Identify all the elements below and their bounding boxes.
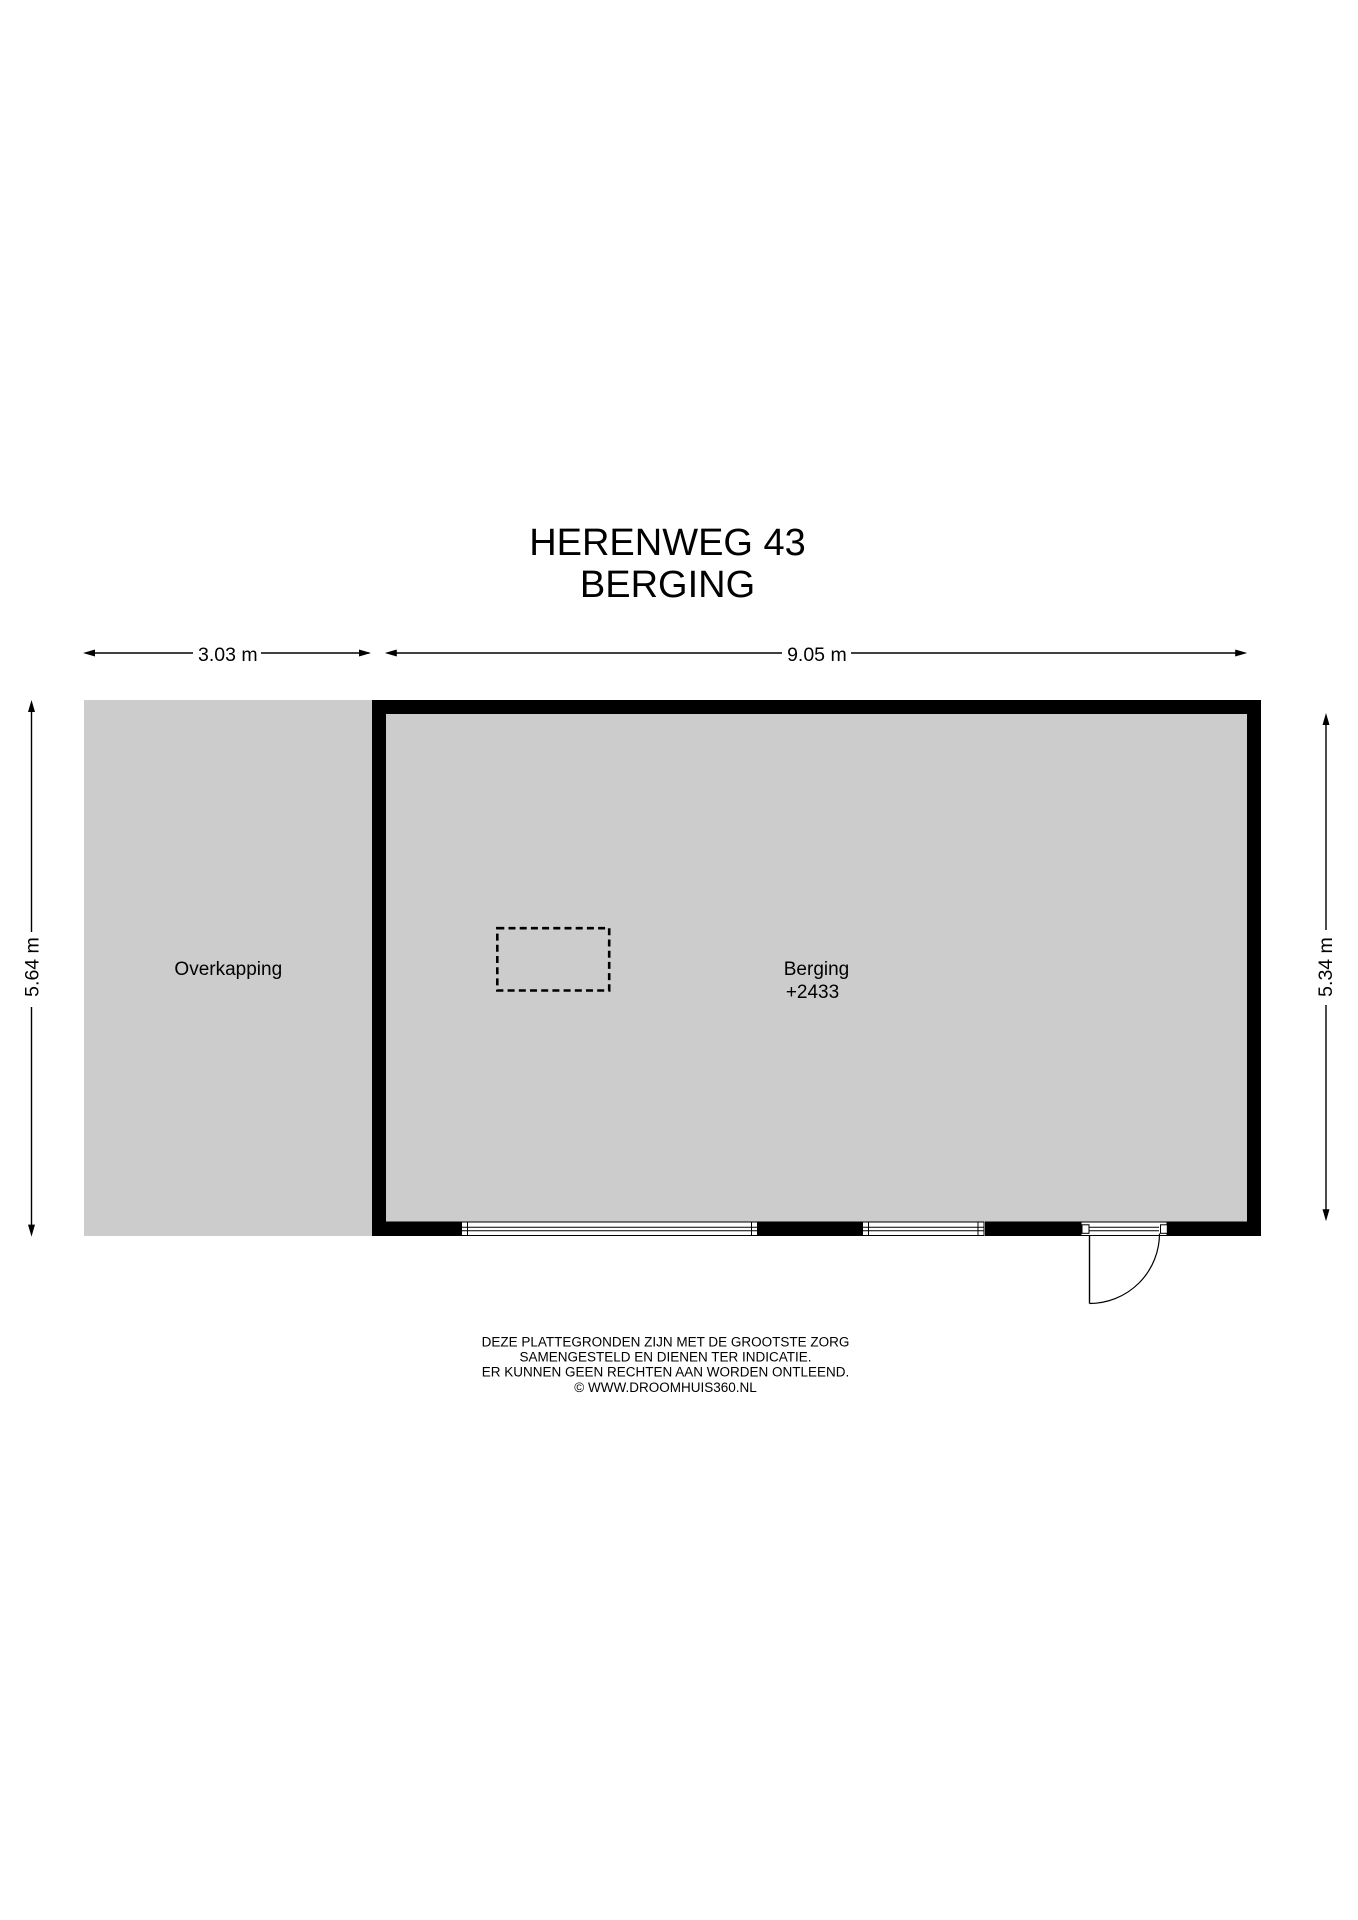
svg-text:ER KUNNEN GEEN RECHTEN AAN WOR: ER KUNNEN GEEN RECHTEN AAN WORDEN ONTLEE… bbox=[482, 1365, 850, 1380]
svg-text:BERGING: BERGING bbox=[580, 564, 755, 606]
svg-text:5.64 m: 5.64 m bbox=[22, 937, 44, 997]
svg-text:Overkapping: Overkapping bbox=[174, 959, 282, 980]
svg-text:© WWW.DROOMHUIS360.NL: © WWW.DROOMHUIS360.NL bbox=[574, 1380, 757, 1395]
svg-text:9.05 m: 9.05 m bbox=[787, 644, 847, 666]
svg-text:5.34 m: 5.34 m bbox=[1315, 937, 1337, 997]
svg-text:HERENWEG 43: HERENWEG 43 bbox=[529, 522, 806, 564]
svg-text:Berging: Berging bbox=[784, 959, 850, 980]
svg-text:DEZE PLATTEGRONDEN ZIJN MET DE: DEZE PLATTEGRONDEN ZIJN MET DE GROOTSTE … bbox=[482, 1334, 850, 1349]
svg-text:SAMENGESTELD EN DIENEN TER IND: SAMENGESTELD EN DIENEN TER INDICATIE. bbox=[519, 1350, 811, 1365]
svg-text:+2433: +2433 bbox=[786, 982, 839, 1003]
svg-text:3.03 m: 3.03 m bbox=[198, 644, 258, 666]
